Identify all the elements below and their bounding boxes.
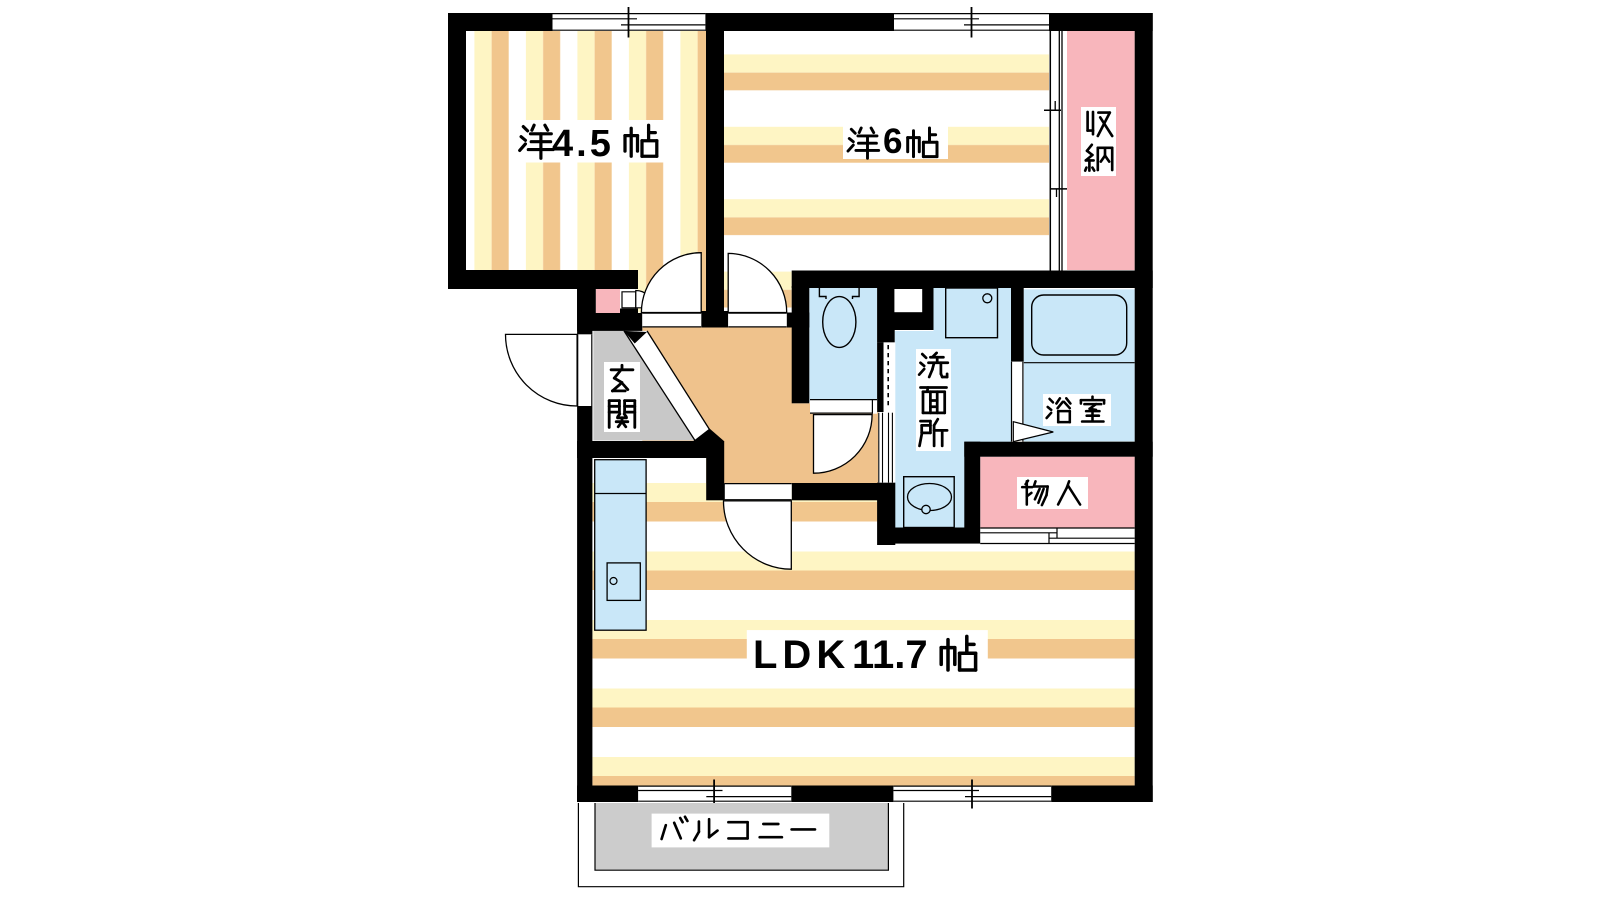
svg-text:11.7: 11.7 bbox=[852, 633, 928, 677]
svg-text:6: 6 bbox=[883, 122, 902, 161]
svg-text:4.5: 4.5 bbox=[552, 123, 614, 165]
svg-text:LDK: LDK bbox=[753, 633, 850, 677]
